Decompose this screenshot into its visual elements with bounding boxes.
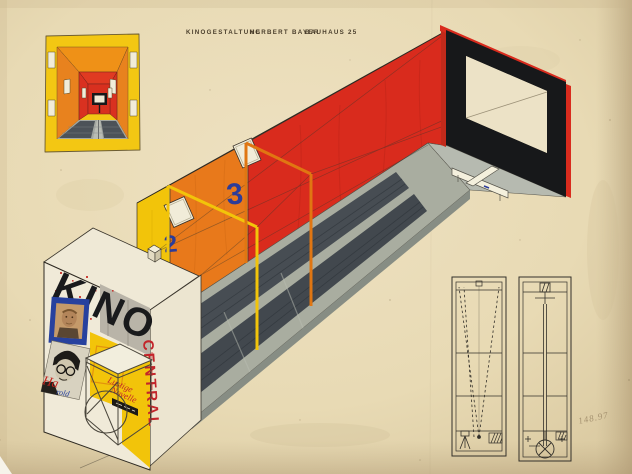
inset-perspective-view: [45, 34, 140, 152]
inscription-school-year: BAUHAUS 25: [305, 29, 358, 36]
artwork-photo: KINOGESTALTUNG HERBERT BAYER BAUHAUS 25: [0, 0, 632, 474]
film-poster-blue: [49, 297, 90, 346]
section-number-2: 2: [163, 230, 179, 258]
screen-frame-red-left-accent: [441, 31, 446, 147]
screen-frame-red-right-accent: [566, 84, 571, 198]
roof-cube: [148, 245, 161, 262]
title-inscription: KINOGESTALTUNG HERBERT BAYER BAUHAUS 25: [186, 29, 358, 36]
section-number-3: 3: [225, 177, 245, 211]
